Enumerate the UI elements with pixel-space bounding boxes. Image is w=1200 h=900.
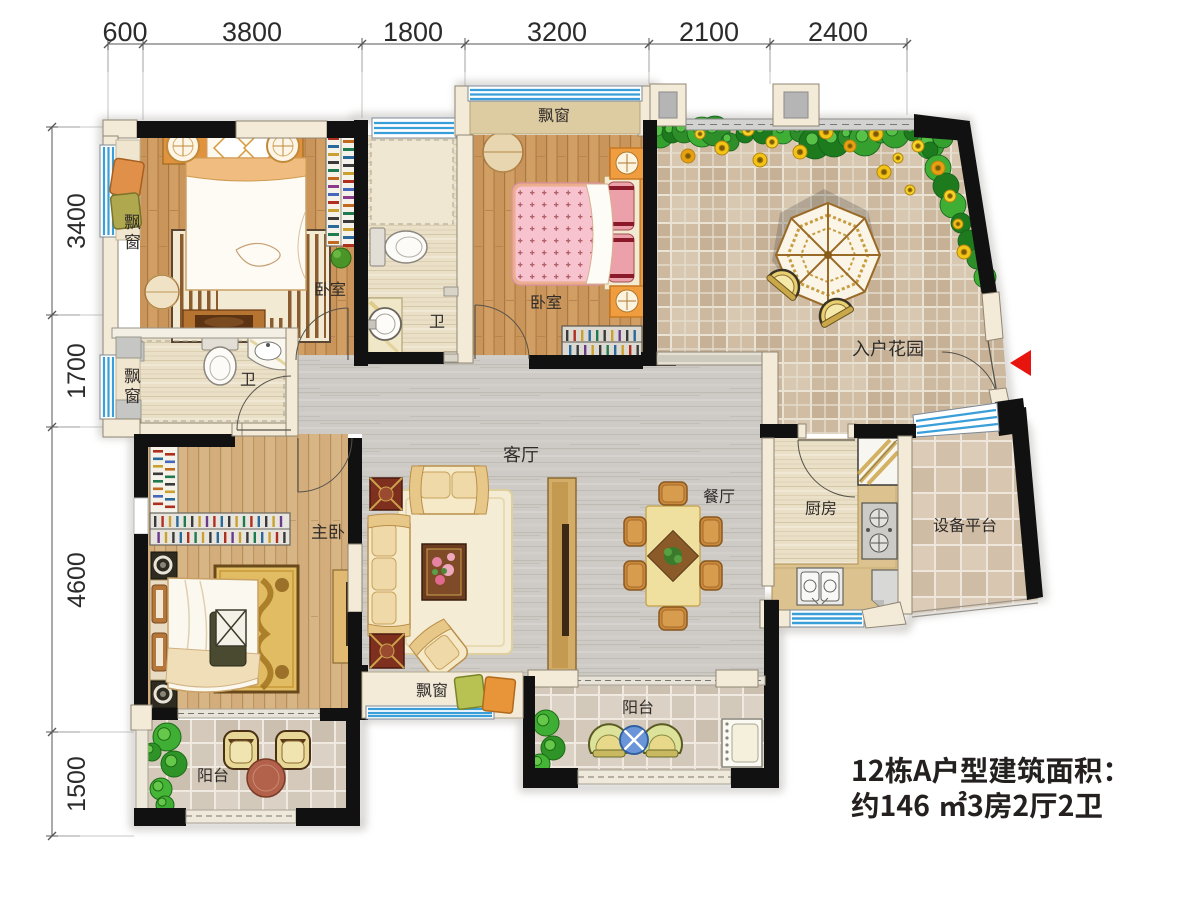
svg-text:1700: 1700 bbox=[63, 343, 91, 399]
svg-text:2400: 2400 bbox=[808, 17, 868, 47]
svg-text:600: 600 bbox=[102, 17, 147, 47]
svg-text:3400: 3400 bbox=[63, 193, 91, 249]
svg-text:3800: 3800 bbox=[222, 17, 282, 47]
svg-text:1500: 1500 bbox=[63, 756, 91, 812]
svg-text:2100: 2100 bbox=[679, 17, 739, 47]
svg-text:4600: 4600 bbox=[63, 552, 91, 608]
svg-text:3200: 3200 bbox=[527, 17, 587, 47]
svg-text:1800: 1800 bbox=[383, 17, 443, 47]
